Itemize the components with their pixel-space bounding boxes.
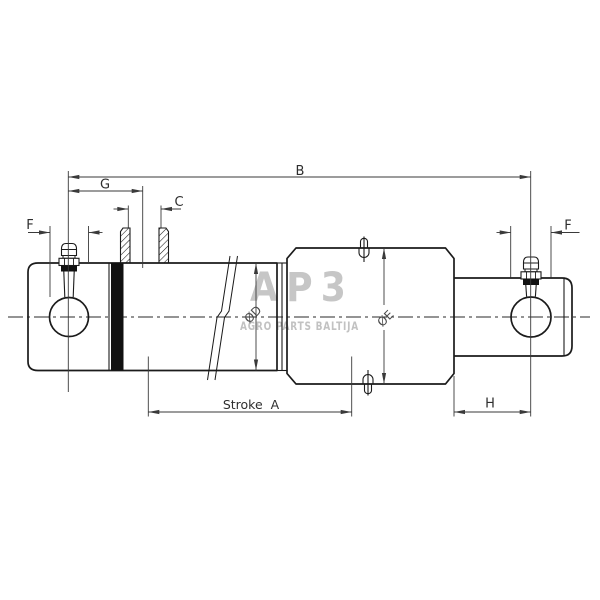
dim-rod-end-length: H xyxy=(454,397,531,415)
dim-label-stroke: Stroke A xyxy=(223,397,280,412)
break-lines xyxy=(208,256,238,380)
dim-overall-length: B xyxy=(68,164,530,179)
dim-label-f-left: F xyxy=(26,218,33,233)
seal-band xyxy=(111,263,124,371)
dim-stroke: Stroke A xyxy=(148,397,351,414)
watermark: AP3 AGRO PARTS BALTIJA xyxy=(240,265,359,333)
oil-port-right-wall xyxy=(159,228,169,263)
dim-label-b: B xyxy=(296,164,305,179)
dim-label-g: G xyxy=(100,178,110,193)
dim-guide-diameter: ØE xyxy=(375,248,397,384)
bleed-port-top xyxy=(359,237,369,263)
dim-label-c: C xyxy=(174,195,183,210)
watermark-subtitle: AGRO PARTS BALTIJA xyxy=(240,319,359,333)
dim-pin-bore-left: F xyxy=(26,218,102,235)
oil-port-left-wall xyxy=(121,228,131,263)
guide-block xyxy=(287,237,454,396)
dim-port-thread: C xyxy=(114,195,184,211)
dim-pin-bore-right: F xyxy=(497,219,580,235)
oil-port xyxy=(121,228,169,263)
watermark-logo: AP3 xyxy=(250,265,354,311)
dim-label-h: H xyxy=(485,397,495,412)
dim-label-diameter-e: ØE xyxy=(375,308,397,330)
cylinder-drawing-svg: AP3 AGRO PARTS BALTIJA xyxy=(0,0,600,600)
dim-label-f-right: F xyxy=(564,219,571,234)
grease-fitting-left xyxy=(59,244,79,298)
bleed-port-bottom xyxy=(363,370,373,396)
dim-port-position: G xyxy=(68,178,142,194)
drawing-page: AP3 AGRO PARTS BALTIJA xyxy=(0,0,600,600)
